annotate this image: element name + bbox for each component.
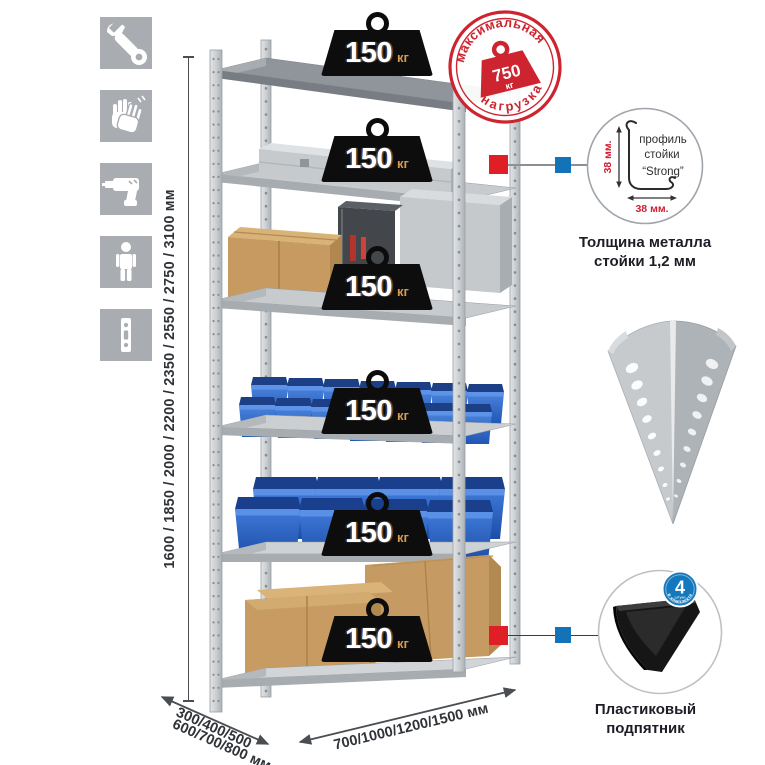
dim-38-horizontal: 38 мм.	[635, 203, 668, 215]
post-tile	[100, 309, 152, 361]
front-left-post	[210, 50, 222, 712]
metal-thickness-caption: Толщина металла стойки 1,2 мм	[560, 233, 730, 271]
load-value: 150	[345, 271, 392, 304]
load-unit: кг	[397, 50, 409, 65]
person-tile	[100, 236, 152, 288]
load-value: 150	[345, 517, 392, 550]
back-right-post	[510, 80, 520, 664]
weight-badge-level-5: 150кг	[321, 492, 433, 556]
profile-label-3: “Strong”	[642, 166, 684, 178]
connector-line-bottom	[505, 635, 598, 636]
load-unit: кг	[397, 530, 409, 545]
load-value: 150	[345, 37, 392, 70]
bottom-dimensions: 300/400/500 600/700/800 мм 700/1000/1200…	[140, 668, 560, 765]
plastic-foot-detail-circle: 4 штуки в комплекте	[596, 568, 726, 698]
front-right-post	[453, 85, 465, 672]
load-unit: кг	[397, 284, 409, 299]
load-unit: кг	[397, 156, 409, 171]
height-dimension-label: 1600 / 1850 / 2000 / 2200 / 2350 / 2550 …	[162, 189, 178, 568]
weight-badge-level-6: 150кг	[321, 598, 433, 662]
caption-line: стойки 1,2 мм	[560, 252, 730, 271]
caption-line: подпятник	[563, 719, 728, 738]
plastic-foot-caption: Пластиковый подпятник	[563, 700, 728, 738]
load-value: 150	[345, 395, 392, 428]
included-count-badge: 4 штуки в комплекте	[663, 572, 698, 607]
profile-label-1: профиль	[639, 134, 687, 146]
load-value: 150	[345, 143, 392, 176]
weight-badge-level-2: 150кг	[321, 118, 433, 182]
caption-line: Пластиковый	[563, 700, 728, 719]
wrench-icon	[100, 17, 152, 69]
gloves-tile	[100, 90, 152, 142]
caption-line: Толщина металла	[560, 233, 730, 252]
load-unit: кг	[397, 408, 409, 423]
person-height-icon	[100, 236, 152, 288]
connector-line-top	[505, 164, 587, 166]
load-unit: кг	[397, 636, 409, 651]
width-dimension-label: 700/1000/1200/1500 мм	[332, 701, 490, 754]
weight-badge-level-1: 150кг	[321, 12, 433, 76]
perforated-post-icon	[100, 309, 152, 361]
profile-detail-circle: 38 мм. 38 мм. профиль стойки “Strong”	[584, 105, 706, 227]
perforated-upright-angle	[598, 306, 748, 531]
dim-38-vertical: 38 мм.	[602, 140, 614, 173]
red-marker-bottom	[489, 626, 508, 645]
blue-marker-bottom	[555, 627, 571, 643]
weight-badge-level-3: 150кг	[321, 246, 433, 310]
red-marker-top	[489, 155, 508, 174]
height-dimension-line	[188, 57, 189, 701]
gloves-icon	[100, 90, 152, 142]
profile-label-2: стойки	[644, 149, 679, 161]
drill-icon	[100, 163, 152, 215]
infographic-stage: 1600 / 1850 / 2000 / 2200 / 2350 / 2550 …	[0, 0, 765, 765]
blue-marker-top	[555, 157, 571, 173]
wrench-tile	[100, 17, 152, 69]
height-dim-tick-top	[183, 56, 194, 58]
drill-tile	[100, 163, 152, 215]
load-value: 150	[345, 623, 392, 656]
weight-badge-level-4: 150кг	[321, 370, 433, 434]
